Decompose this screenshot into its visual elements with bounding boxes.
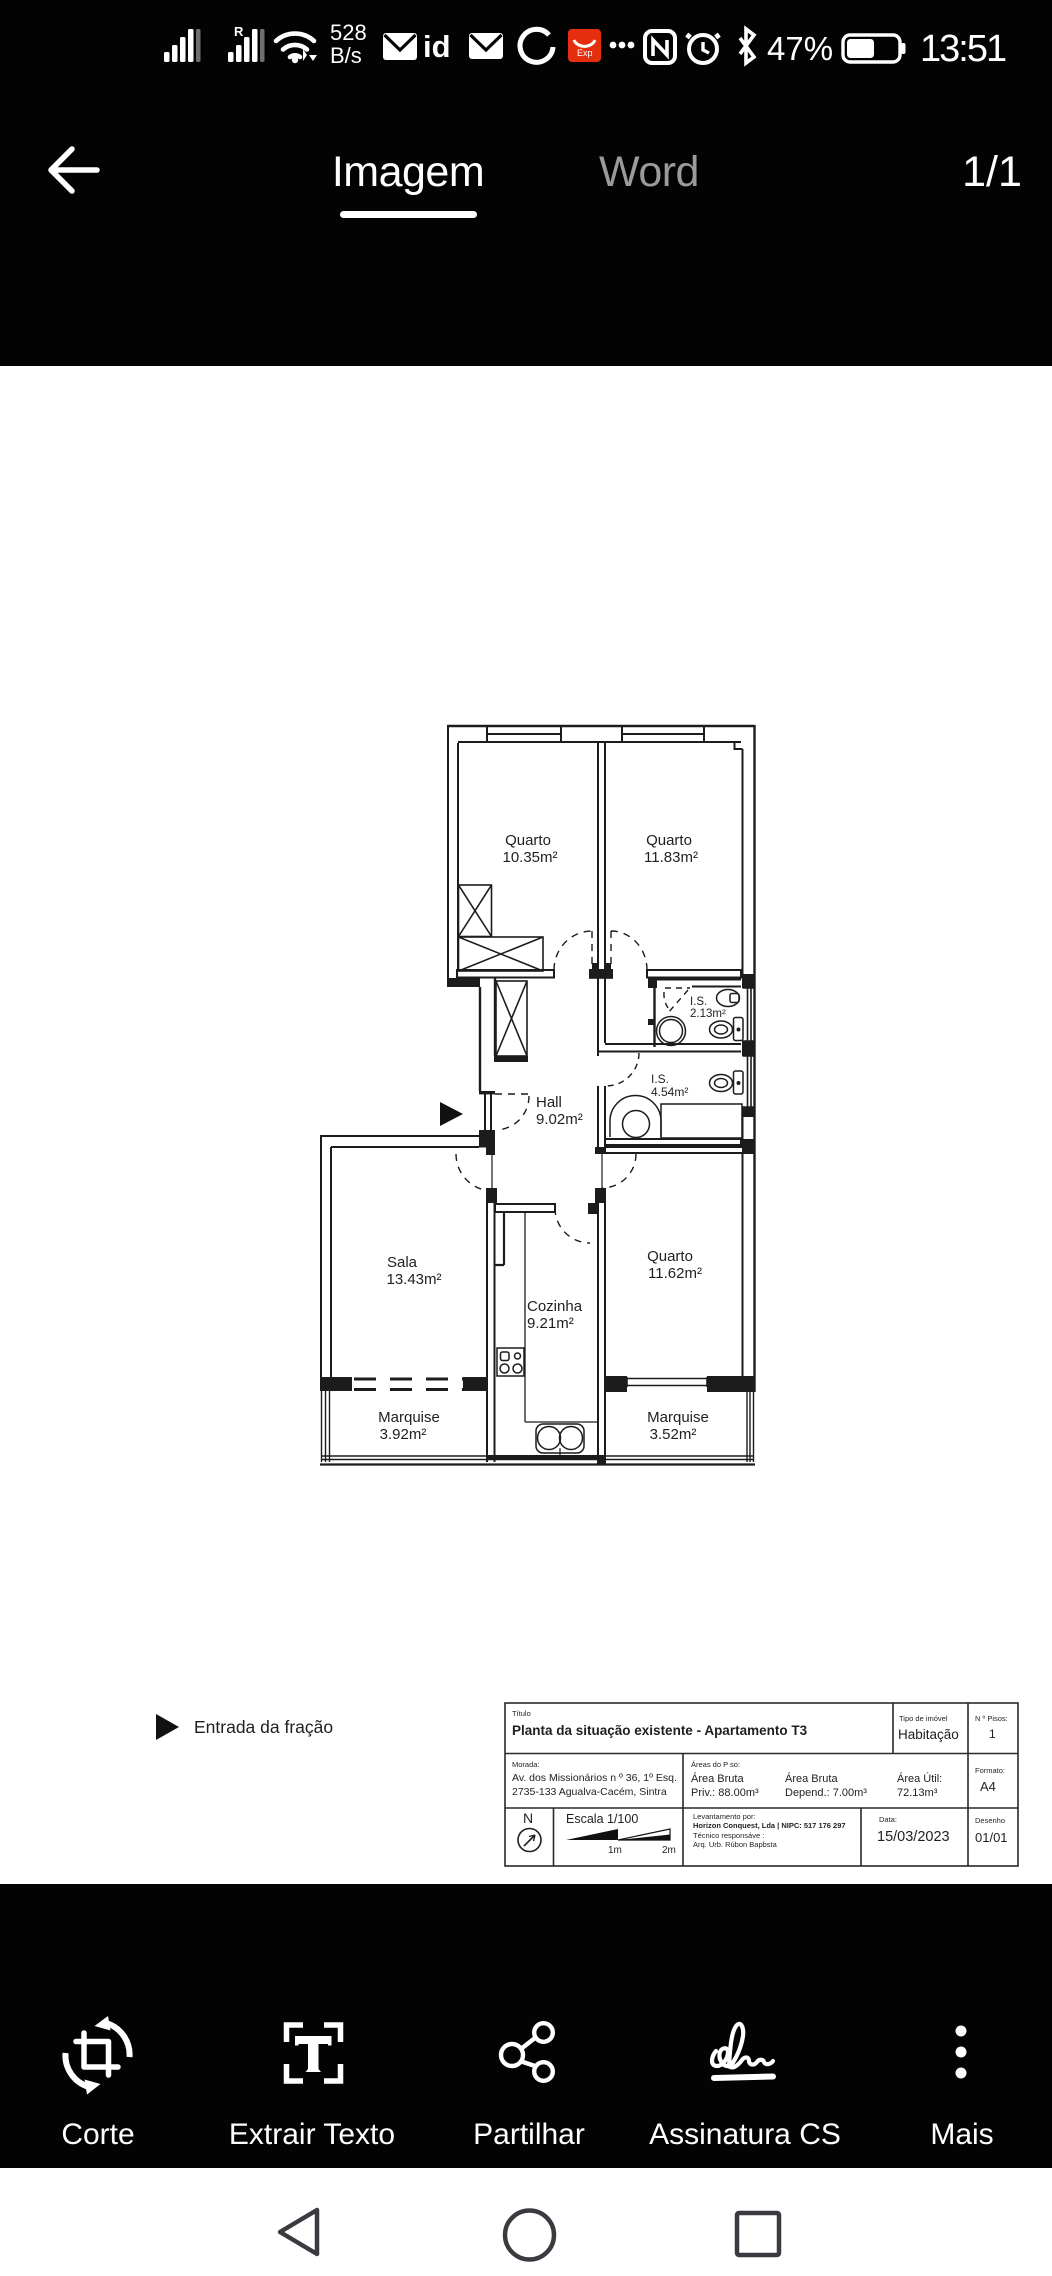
svg-text:Assinatura CS: Assinatura CS: [649, 2118, 841, 2151]
svg-text:Cozinha: Cozinha: [527, 1298, 583, 1315]
svg-text:N º Pisos:: N º Pisos:: [975, 1714, 1008, 1723]
svg-text:9.21m²: 9.21m²: [527, 1315, 574, 1332]
svg-text:Áreas do P so:: Áreas do P so:: [691, 1760, 740, 1769]
svg-text:B/s: B/s: [330, 43, 362, 68]
svg-text:R: R: [234, 24, 244, 39]
svg-text:Data:: Data:: [879, 1815, 897, 1824]
svg-text:Quarto: Quarto: [646, 832, 692, 849]
svg-text:Av. dos Missionários n º 36, 1: Av. dos Missionários n º 36, 1º Esq.: [512, 1772, 677, 1784]
svg-text:Área Bruta: Área Bruta: [785, 1772, 838, 1785]
svg-text:15/03/2023: 15/03/2023: [877, 1829, 950, 1845]
svg-text:11.83m²: 11.83m²: [644, 849, 698, 866]
svg-text:id: id: [423, 29, 451, 64]
svg-text:Extrair Texto: Extrair Texto: [229, 2118, 395, 2151]
svg-text:Área Útil:: Área Útil:: [897, 1772, 942, 1785]
svg-text:Word: Word: [599, 148, 699, 196]
svg-text:Sala: Sala: [387, 1254, 418, 1271]
svg-text:Corte: Corte: [61, 2118, 134, 2151]
svg-text:Quarto: Quarto: [505, 832, 551, 849]
svg-text:Planta da situação existente -: Planta da situação existente - Apartamen…: [512, 1723, 808, 1738]
svg-text:47%: 47%: [767, 30, 833, 67]
svg-text:Habitação: Habitação: [898, 1727, 959, 1742]
svg-text:N: N: [523, 1810, 533, 1826]
svg-text:1m: 1m: [608, 1845, 622, 1856]
svg-text:1: 1: [989, 1727, 996, 1741]
svg-text:Entrada da fração: Entrada da fração: [194, 1717, 333, 1737]
svg-text:Marquise: Marquise: [647, 1409, 709, 1426]
svg-text:72.13m³: 72.13m³: [897, 1787, 938, 1799]
svg-text:Marquise: Marquise: [378, 1409, 440, 1426]
svg-text:Horizon Conquest, Lda | NIPC:: Horizon Conquest, Lda | NIPC: 517 176 29…: [693, 1821, 846, 1830]
svg-text:528: 528: [330, 20, 367, 45]
svg-text:3.92m²: 3.92m²: [380, 1426, 427, 1443]
svg-text:Mais: Mais: [930, 2118, 993, 2151]
svg-text:Formato:: Formato:: [975, 1766, 1005, 1775]
svg-text:A4: A4: [980, 1779, 996, 1794]
svg-text:01/01: 01/01: [975, 1830, 1008, 1845]
svg-text:Área Bruta: Área Bruta: [691, 1772, 744, 1785]
svg-text:11.62m²: 11.62m²: [648, 1265, 702, 1282]
svg-text:Imagem: Imagem: [332, 148, 484, 196]
svg-text:Priv.: 88.00m³: Priv.: 88.00m³: [691, 1787, 759, 1799]
svg-text:2m: 2m: [662, 1845, 676, 1856]
svg-text:Arq. Urb. Rúbon Bapbsta: Arq. Urb. Rúbon Bapbsta: [693, 1840, 778, 1849]
svg-text:Exp: Exp: [577, 48, 593, 58]
svg-text:Desenho: Desenho: [975, 1816, 1005, 1825]
svg-text:10.35m²: 10.35m²: [502, 849, 557, 866]
svg-text:Partilhar: Partilhar: [473, 2118, 585, 2151]
svg-text:3.52m²: 3.52m²: [650, 1426, 697, 1443]
svg-text:Levantamento por:: Levantamento por:: [693, 1812, 756, 1821]
svg-text:Título: Título: [512, 1709, 531, 1718]
svg-text:9.02m²: 9.02m²: [536, 1111, 583, 1128]
svg-text:Tipo de imóvel: Tipo de imóvel: [899, 1714, 948, 1723]
svg-text:Hall: Hall: [536, 1094, 562, 1111]
svg-text:Escala 1/100: Escala 1/100: [566, 1812, 638, 1826]
svg-text:Depend.: 7.00m³: Depend.: 7.00m³: [785, 1787, 867, 1799]
svg-text:Técnico responsáve :: Técnico responsáve :: [693, 1831, 764, 1840]
svg-text:I.S.: I.S.: [690, 996, 707, 1008]
svg-text:4.54m²: 4.54m²: [651, 1085, 688, 1099]
svg-text:13:51: 13:51: [920, 28, 1006, 70]
svg-text:13.43m²: 13.43m²: [386, 1271, 441, 1288]
svg-text:Morada:: Morada:: [512, 1760, 540, 1769]
svg-text:1/1: 1/1: [962, 148, 1022, 196]
svg-text:2735-133 Agualva-Cacém, Sintra: 2735-133 Agualva-Cacém, Sintra: [512, 1786, 667, 1798]
svg-text:I.S.: I.S.: [651, 1072, 669, 1086]
svg-text:2.13m²: 2.13m²: [690, 1008, 726, 1020]
svg-text:Quarto: Quarto: [647, 1248, 693, 1265]
